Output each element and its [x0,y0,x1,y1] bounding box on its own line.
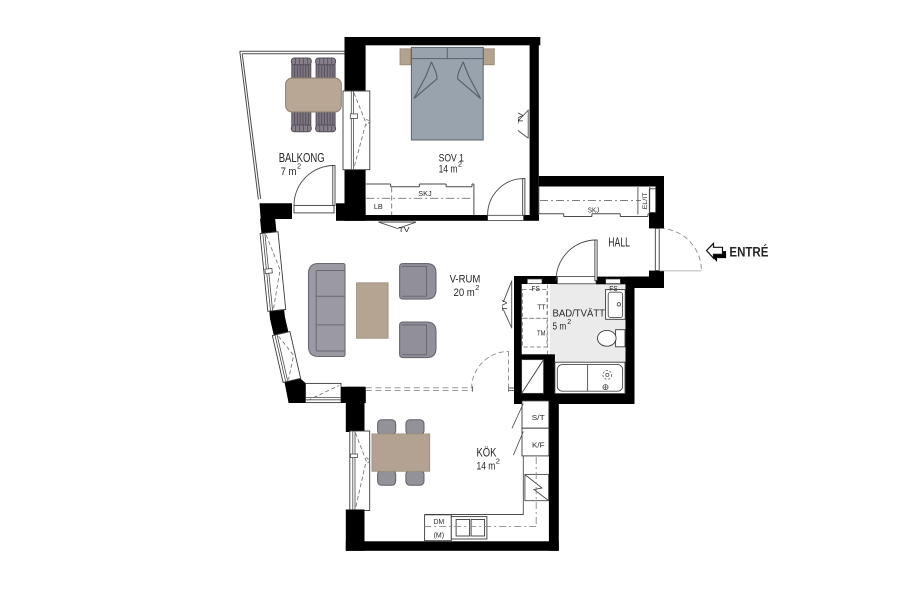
svg-text:2: 2 [458,160,462,169]
svg-text:7 m: 7 m [281,166,297,178]
svg-text:K/F: K/F [532,441,545,450]
svg-text:DM: DM [434,517,445,526]
svg-text:TT: TT [537,303,546,312]
svg-text:ENTRÉ: ENTRÉ [729,245,768,260]
svg-text:EL/IT: EL/IT [642,192,649,209]
svg-text:BAD/TVÄTT: BAD/TVÄTT [553,308,606,320]
svg-text:14 m: 14 m [439,164,458,176]
svg-text:(M): (M) [434,531,445,540]
svg-text:TV: TV [500,300,509,311]
svg-text:HALL: HALL [608,235,630,250]
svg-text:SKJ: SKJ [588,206,599,215]
svg-text:SKJ: SKJ [418,189,432,198]
svg-text:2: 2 [297,162,301,171]
svg-text:TV: TV [399,225,410,234]
svg-text:FS: FS [609,284,617,293]
svg-text:TM: TM [537,328,546,337]
svg-text:FS: FS [532,284,540,293]
svg-text:LB: LB [374,202,383,211]
svg-text:2: 2 [496,457,500,466]
svg-text:KÖK: KÖK [477,448,497,460]
svg-text:S/T: S/T [532,413,545,422]
svg-text:BALKONG: BALKONG [279,151,325,165]
svg-text:14 m: 14 m [477,460,496,472]
svg-text:2: 2 [567,319,571,326]
svg-text:5 m: 5 m [553,322,567,333]
svg-text:TV: TV [516,113,525,124]
svg-text:20 m: 20 m [454,287,475,299]
svg-text:2: 2 [475,283,479,292]
